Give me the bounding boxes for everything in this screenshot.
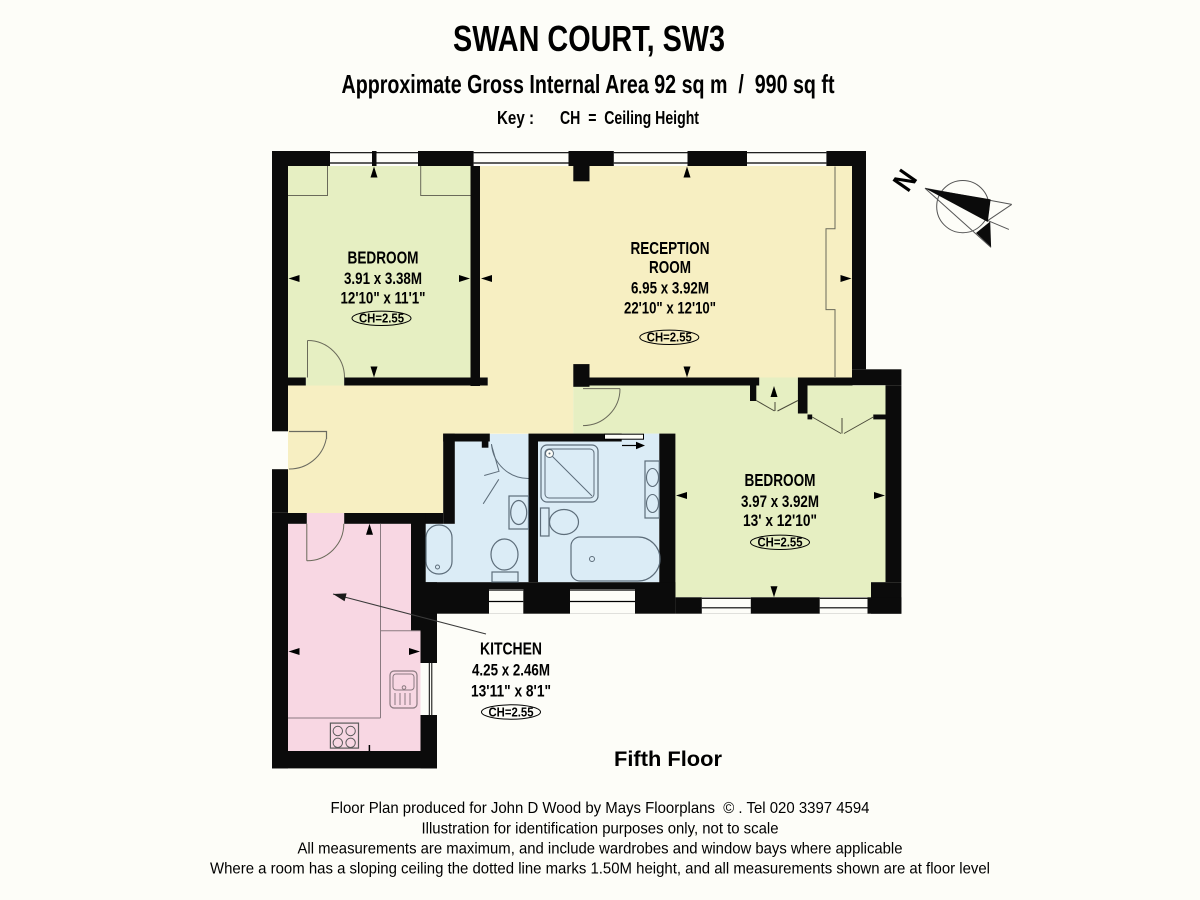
svg-text:3.91 x 3.38M: 3.91 x 3.38M: [344, 270, 422, 288]
svg-text:Fifth Floor: Fifth Floor: [614, 747, 723, 771]
svg-text:CH = Ceiling Height: CH = Ceiling Height: [560, 108, 699, 128]
svg-text:Key :: Key :: [497, 108, 534, 128]
svg-text:Illustration for identificatio: Illustration for identification purposes…: [422, 821, 779, 838]
svg-text:22'10" x 12'10": 22'10" x 12'10": [624, 300, 716, 318]
svg-text:13' x 12'10": 13' x 12'10": [743, 512, 817, 530]
svg-text:CH=2.55: CH=2.55: [647, 331, 692, 345]
svg-text:6.95 x 3.92M: 6.95 x 3.92M: [631, 280, 709, 298]
svg-text:4.25 x 2.46M: 4.25 x 2.46M: [472, 661, 550, 679]
svg-text:BEDROOM: BEDROOM: [745, 470, 816, 490]
svg-text:Approximate Gross Internal Are: Approximate Gross Internal Area 92 sq m …: [342, 69, 835, 99]
svg-text:CH=2.55: CH=2.55: [489, 705, 534, 719]
svg-text:3.97 x 3.92M: 3.97 x 3.92M: [741, 493, 819, 511]
svg-text:KITCHEN: KITCHEN: [480, 639, 542, 659]
svg-text:13'11" x 8'1": 13'11" x 8'1": [471, 682, 551, 700]
svg-text:Where a room has a sloping cei: Where a room has a sloping ceiling the d…: [210, 860, 990, 877]
svg-text:BEDROOM: BEDROOM: [348, 247, 419, 267]
svg-text:RECEPTION: RECEPTION: [631, 238, 710, 258]
svg-text:CH=2.55: CH=2.55: [359, 312, 404, 326]
svg-text:SWAN COURT, SW3: SWAN COURT, SW3: [453, 18, 725, 59]
svg-text:Floor Plan produced for John D: Floor Plan produced for John D Wood by M…: [331, 800, 870, 817]
svg-text:CH=2.55: CH=2.55: [758, 536, 803, 550]
svg-text:12'10" x 11'1": 12'10" x 11'1": [341, 290, 426, 308]
svg-text:All measurements are maximum,: All measurements are maximum, and includ…: [298, 841, 903, 858]
svg-text:ROOM: ROOM: [649, 257, 691, 277]
